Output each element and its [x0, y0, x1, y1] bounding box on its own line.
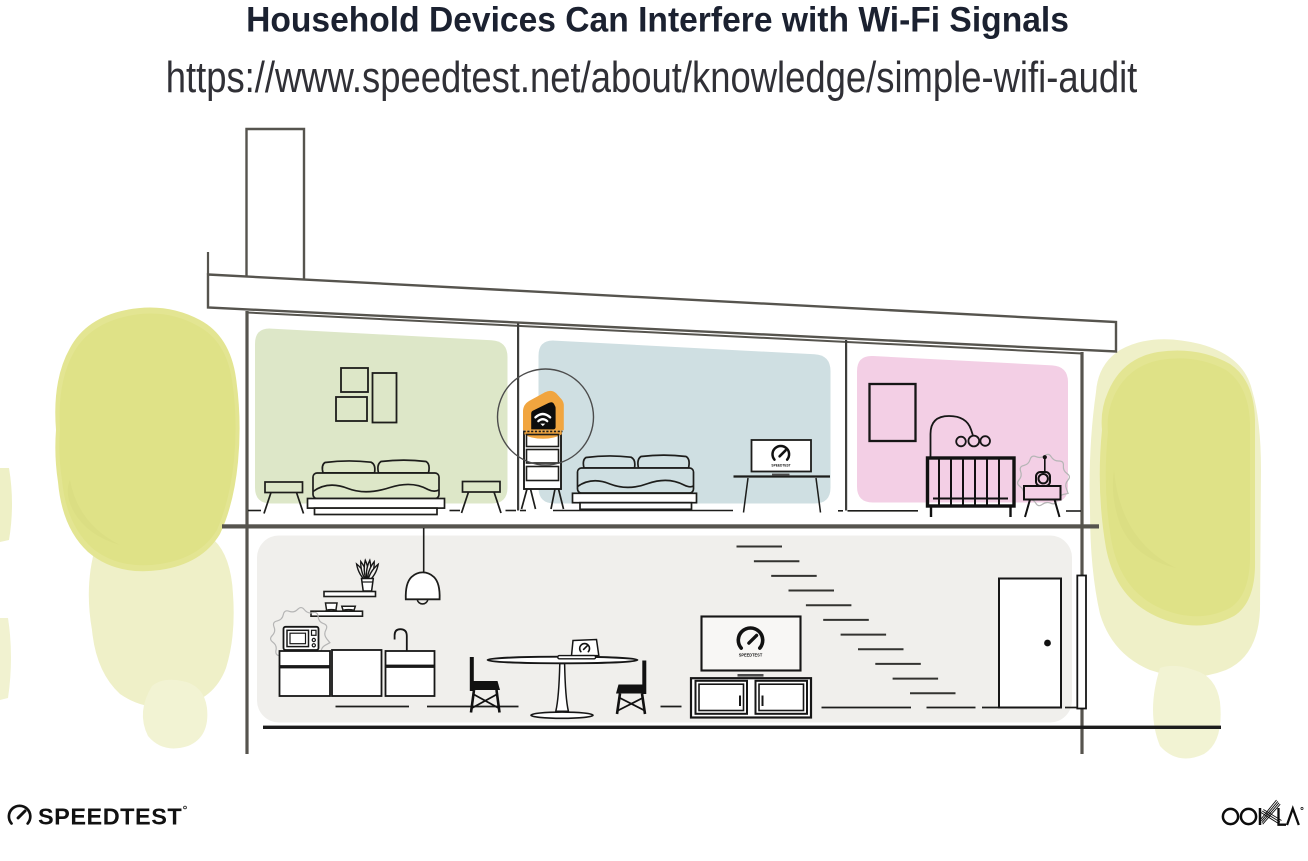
svg-text:Household Devices Can Interfer: Household Devices Can Interfere with Wi-…: [246, 1, 1069, 40]
svg-text:https://www.speedtest.net/abou: https://www.speedtest.net/about/knowledg…: [166, 52, 1138, 102]
svg-text:SPEEDTEST: SPEEDTEST: [771, 463, 791, 467]
svg-text:SPEEDTEST: SPEEDTEST: [739, 652, 763, 657]
svg-text:SPEEDTEST: SPEEDTEST: [38, 804, 182, 830]
